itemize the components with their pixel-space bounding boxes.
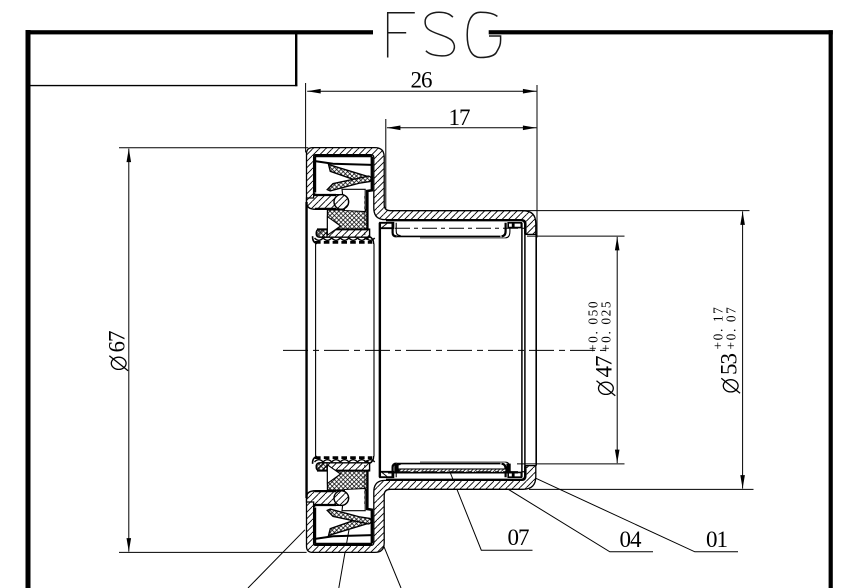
svg-text:04: 04 [620, 527, 643, 552]
svg-text:07: 07 [508, 525, 530, 550]
svg-text:17: 17 [449, 105, 471, 130]
svg-text:+0. 025: +0. 025 [599, 300, 614, 352]
svg-text:+0. 07: +0. 07 [723, 306, 738, 350]
svg-text:26: 26 [411, 67, 433, 92]
svg-text:67: 67 [104, 331, 129, 353]
svg-text:47: 47 [592, 356, 617, 378]
svg-text:53: 53 [716, 354, 741, 376]
svg-text:01: 01 [706, 527, 728, 552]
